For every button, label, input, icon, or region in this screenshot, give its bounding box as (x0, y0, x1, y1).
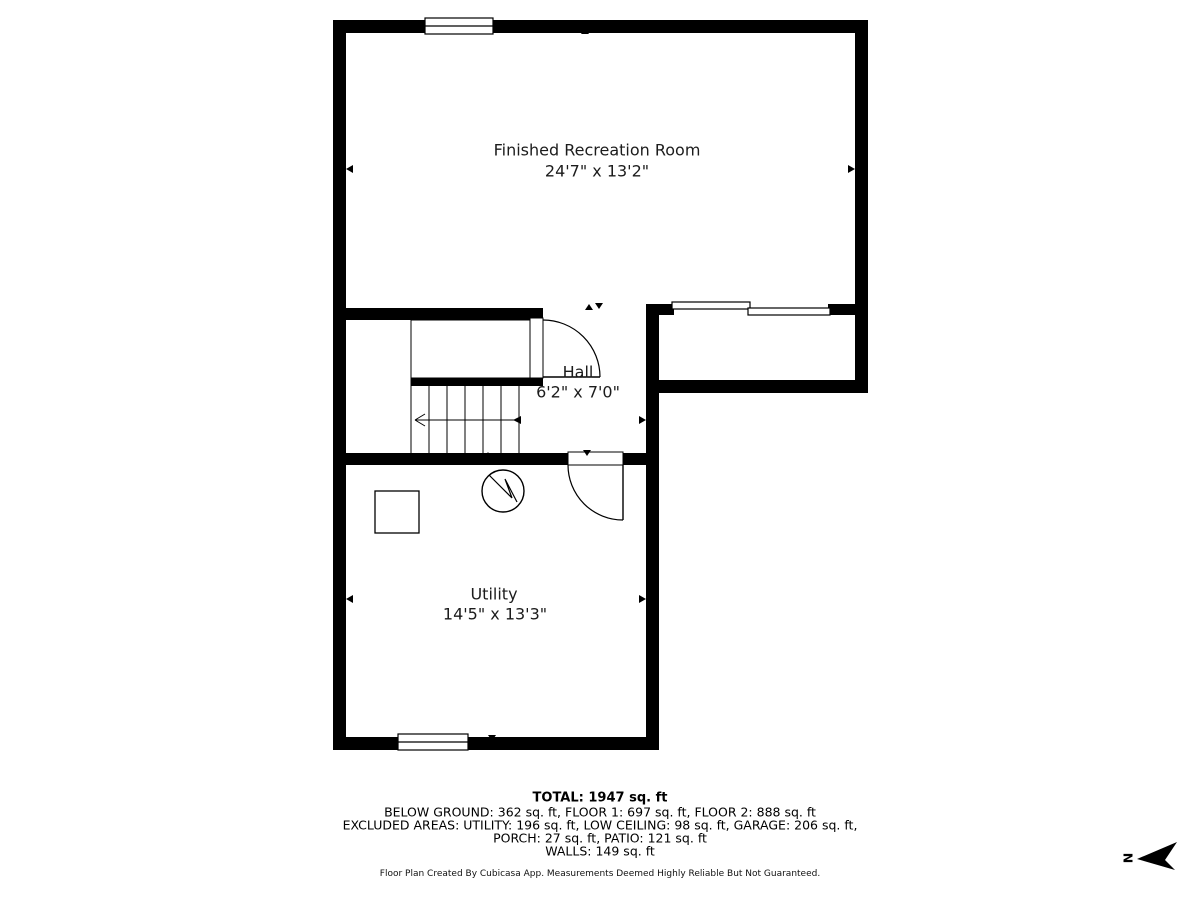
arrow-utility-right (639, 595, 646, 603)
window-alcove-sliding (672, 302, 830, 315)
arrow-recroom-right (848, 165, 855, 173)
arrow-recroom-left (346, 165, 353, 173)
fixture-square (375, 491, 419, 533)
wall-right-recroom (855, 20, 868, 393)
stair-landing (411, 320, 530, 378)
north-label: N (1121, 853, 1136, 863)
recroom-label: Finished Recreation Room (494, 140, 701, 159)
staircase (411, 320, 530, 453)
wall-alcove-bottom (646, 380, 868, 393)
window-recroom-top (425, 18, 493, 34)
north-arrow-icon (1137, 842, 1177, 870)
wall-left (333, 20, 346, 750)
hall-label: Hall (563, 362, 594, 381)
disclaimer-text: Floor Plan Created By Cubicasa App. Meas… (380, 869, 820, 879)
floor-plan-page: Finished Recreation Room 24'7" x 13'2" H… (0, 0, 1200, 900)
hall-dimensions: 6'2" x 7'0" (536, 382, 620, 401)
wall-stair-top (333, 308, 543, 320)
wall-bottom (333, 737, 659, 750)
water-heater-symbol (482, 470, 524, 512)
doors (530, 318, 623, 520)
window-utility-bottom (398, 734, 468, 750)
arrow-hall-up (585, 304, 593, 310)
wall-alcove-top-left (646, 304, 674, 315)
utility-label: Utility (470, 584, 517, 603)
wall-landing-front (411, 378, 543, 386)
floor-plan-drawing (0, 0, 1200, 900)
recroom-dimensions: 24'7" x 13'2" (545, 161, 649, 180)
door-utility (568, 452, 623, 520)
arrow-hall-right (639, 416, 646, 424)
utility-dimensions: 14'5" x 13'3" (443, 604, 547, 623)
summary-walls: WALLS: 149 sq. ft (545, 844, 655, 859)
summary-total: TOTAL: 1947 sq. ft (533, 791, 668, 806)
wall-hall-right (646, 304, 659, 750)
stair-direction-arrow (415, 414, 521, 426)
wall-alcove-top-right (828, 304, 858, 315)
arrow-utility-left (346, 595, 353, 603)
arrow-hall-down (595, 303, 603, 309)
fixtures (375, 470, 524, 533)
wall-top (333, 20, 868, 33)
